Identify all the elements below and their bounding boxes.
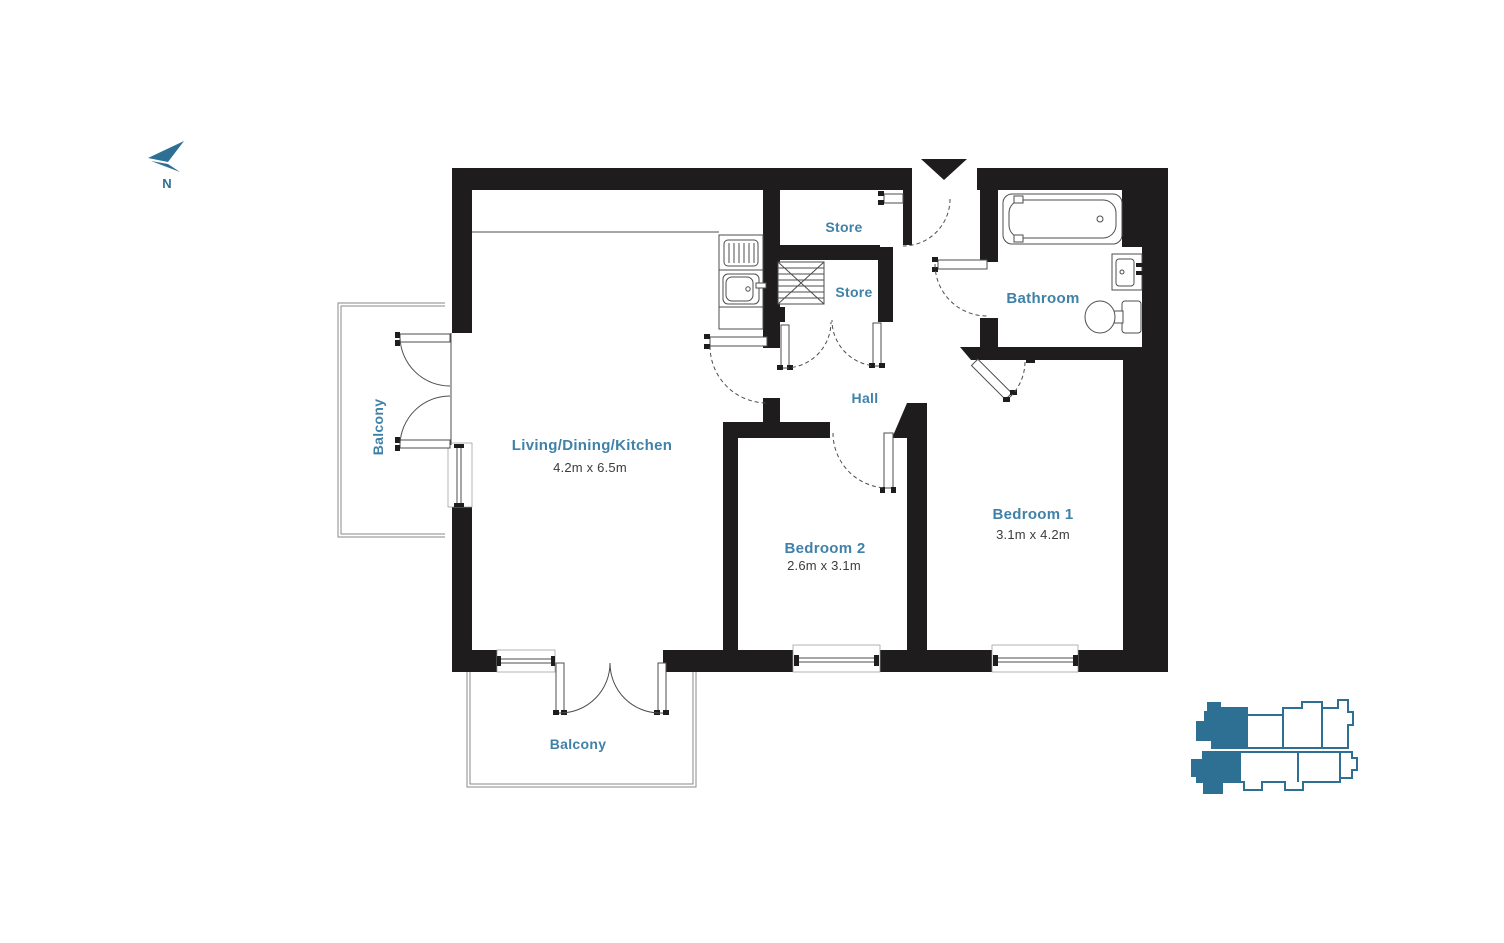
hall-label: Hall [852, 390, 879, 406]
balcony-bottom-label: Balcony [550, 736, 607, 752]
bedroom1-dims: 3.1m x 4.2m [996, 527, 1070, 542]
building-locator [1192, 700, 1357, 793]
balcony-doors-left [395, 332, 451, 451]
toilet-icon [1085, 301, 1141, 333]
north-label: N [162, 176, 171, 191]
window-bedroom2 [793, 645, 880, 672]
floorplan-canvas: N [0, 0, 1504, 943]
living-room-dims: 4.2m x 6.5m [553, 460, 627, 475]
store-double-doors [777, 320, 885, 370]
balcony-doors-bottom [553, 663, 669, 715]
store-inner-label: Store [835, 284, 872, 300]
balcony-left-label: Balcony [370, 399, 386, 456]
bathroom-label: Bathroom [1006, 290, 1079, 307]
bathtub-icon [1003, 194, 1122, 244]
floorplan-page: N [0, 0, 1504, 943]
window-left-balcony [448, 443, 472, 507]
window-living [497, 650, 555, 672]
bedroom1-label: Bedroom 1 [992, 506, 1073, 523]
bathroom-vanity-icon [1112, 254, 1143, 290]
highlighted-unit-upper [1197, 703, 1247, 748]
living-room-label: Living/Dining/Kitchen [512, 437, 672, 454]
highlighted-unit-lower [1192, 752, 1240, 793]
living-room-door [704, 334, 767, 403]
entrance-door [878, 191, 950, 246]
bathroom-door [932, 257, 987, 316]
bedroom2-door [833, 433, 896, 493]
kitchen-unit [472, 232, 766, 329]
bedroom2-label: Bedroom 2 [784, 540, 865, 557]
entrance-marker-icon [921, 159, 967, 180]
bedroom2-dims: 2.6m x 3.1m [787, 558, 861, 573]
store-top-label: Store [825, 219, 862, 235]
store-cylinder-icon [778, 262, 824, 304]
window-bedroom1 [992, 645, 1078, 672]
north-arrow-icon: N [148, 141, 184, 191]
floor-plan: Living/Dining/Kitchen 4.2m x 6.5m Bedroo… [338, 159, 1168, 787]
